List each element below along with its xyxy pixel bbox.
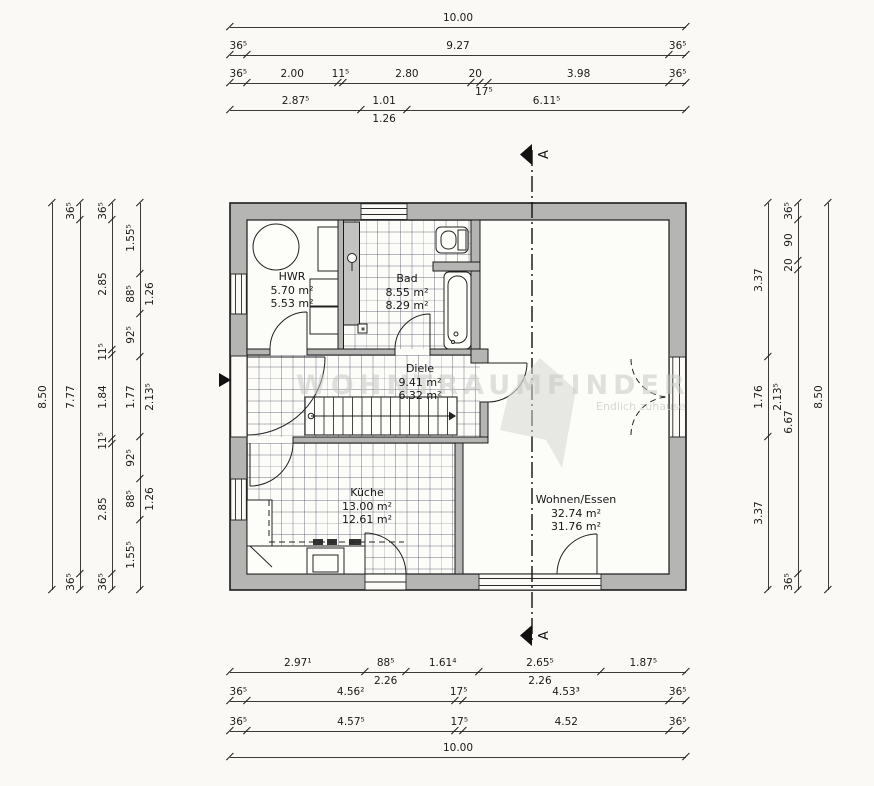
dim-value: 36⁵ bbox=[669, 68, 687, 80]
dim-sub-value: 2.13⁵ bbox=[144, 383, 156, 411]
dim-value: 36⁵ bbox=[65, 203, 77, 221]
dim-value: 11⁵ bbox=[97, 343, 109, 361]
dim-value: 20 bbox=[469, 68, 482, 80]
room-label-bad: Bad 8.55 m² 8.29 m² bbox=[367, 272, 447, 312]
hwr-dryer bbox=[310, 307, 338, 334]
dim-value: 36⁵ bbox=[230, 68, 248, 80]
section-label-top: A bbox=[537, 150, 552, 159]
dim-value: 2.85 bbox=[97, 497, 109, 520]
watermark-tagline: Endlich zuhause bbox=[596, 400, 685, 413]
dim-value: 90 bbox=[783, 233, 795, 246]
dim-value: 4.53³ bbox=[552, 686, 580, 698]
dim-value: 2.65⁵ bbox=[526, 657, 554, 669]
bad-door-swing bbox=[395, 314, 430, 349]
dim-sub-value: 1.26 bbox=[144, 282, 156, 305]
dim-value: 36⁵ bbox=[65, 573, 77, 591]
dim-value: 17⁵ bbox=[450, 686, 468, 698]
dim-value: 2.97¹ bbox=[284, 657, 312, 669]
dim-value: 11⁵ bbox=[332, 68, 350, 80]
dim-value: 11⁵ bbox=[97, 432, 109, 450]
dim-value: 10.00 bbox=[443, 12, 473, 24]
dim-value: 3.37 bbox=[753, 268, 765, 291]
dim-value: 1.77 bbox=[125, 385, 137, 408]
room-label-kueche: Küche 13.00 m² 12.61 m² bbox=[327, 486, 407, 526]
dim-value: 88⁵ bbox=[125, 490, 137, 508]
dim-value: 1.61⁴ bbox=[429, 657, 457, 669]
dim-value: 3.98 bbox=[567, 68, 590, 80]
staircase bbox=[305, 397, 457, 435]
dim-value: 1.87⁵ bbox=[629, 657, 657, 669]
shower-head bbox=[348, 254, 357, 263]
dim-sub-value: 2.13⁵ bbox=[772, 383, 784, 411]
dim-value: 36⁵ bbox=[669, 686, 687, 698]
kueche-exterior-door-swing bbox=[365, 533, 406, 574]
dim-value: 17⁵ bbox=[475, 86, 493, 98]
dim-value: 1.84 bbox=[97, 385, 109, 408]
dim-value: 36⁵ bbox=[669, 716, 687, 728]
dim-value: 88⁵ bbox=[377, 657, 395, 669]
dim-value: 8.50 bbox=[813, 385, 825, 408]
dim-value: 6.67 bbox=[783, 410, 795, 433]
dim-value: 36⁵ bbox=[230, 40, 248, 52]
dim-value: 36⁵ bbox=[669, 40, 687, 52]
dim-value: 2.85 bbox=[97, 273, 109, 296]
dim-value: 36⁵ bbox=[97, 573, 109, 591]
dim-value: 17⁵ bbox=[450, 716, 468, 728]
dim-value: 88⁵ bbox=[125, 285, 137, 303]
diele-kueche-door-swing bbox=[250, 443, 293, 486]
hwr-boiler bbox=[253, 224, 299, 270]
section-label-bottom: A bbox=[537, 631, 552, 640]
dim-sub-value: 1.26 bbox=[144, 487, 156, 510]
terrace-door-swing bbox=[557, 534, 597, 574]
dim-value: 3.37 bbox=[753, 502, 765, 525]
dim-value: 4.52 bbox=[555, 716, 578, 728]
dim-value: 20 bbox=[783, 258, 795, 271]
hwr-cabinet bbox=[318, 227, 338, 271]
room-label-wohnen: Wohnen/Essen 32.74 m² 31.76 m² bbox=[526, 493, 626, 533]
dim-value: 1.76 bbox=[753, 385, 765, 408]
dim-value: 1.55⁵ bbox=[125, 225, 137, 253]
dim-value: 92⁵ bbox=[125, 449, 137, 467]
dim-value: 7.77 bbox=[65, 385, 77, 408]
dim-value: 1.01 bbox=[372, 95, 395, 107]
dim-value: 36⁵ bbox=[783, 573, 795, 591]
dim-sub-value: 1.26 bbox=[372, 113, 395, 125]
dim-value: 2.00 bbox=[281, 68, 304, 80]
room-label-hwr: HWR 5.70 m² 5.53 m² bbox=[252, 270, 332, 310]
dim-value: 36⁵ bbox=[230, 716, 248, 728]
dim-sub-value: 2.26 bbox=[374, 675, 397, 687]
dim-sub-value: 2.26 bbox=[528, 675, 551, 687]
dim-value: 10.00 bbox=[443, 742, 473, 754]
dim-value: 2.80 bbox=[395, 68, 418, 80]
dim-value: 6.11⁵ bbox=[533, 95, 561, 107]
room-label-diele: Diele 9.41 m² 6.32 m² bbox=[380, 362, 460, 402]
dim-value: 9.27 bbox=[446, 40, 469, 52]
dim-value: 36⁵ bbox=[783, 203, 795, 221]
dim-value: 92⁵ bbox=[125, 326, 137, 344]
dim-value: 8.50 bbox=[37, 385, 49, 408]
dim-value: 4.57⁵ bbox=[337, 716, 365, 728]
kitchen-counter-left bbox=[247, 500, 272, 546]
watermark: WOHNTRAUMFINDER bbox=[296, 370, 690, 401]
hwr-door-swing bbox=[270, 312, 307, 349]
dim-value: 4.56² bbox=[337, 686, 365, 698]
section-marker-bottom bbox=[520, 625, 532, 646]
floorplan-sheet: WOHNTRAUMFINDER Endlich zuhause HWR 5.70… bbox=[0, 0, 874, 786]
section-marker-top bbox=[520, 144, 532, 165]
dim-value: 2.87⁵ bbox=[282, 95, 310, 107]
dim-value: 36⁵ bbox=[230, 686, 248, 698]
dim-value: 1.55⁵ bbox=[125, 541, 137, 569]
dim-value: 36⁵ bbox=[97, 203, 109, 221]
